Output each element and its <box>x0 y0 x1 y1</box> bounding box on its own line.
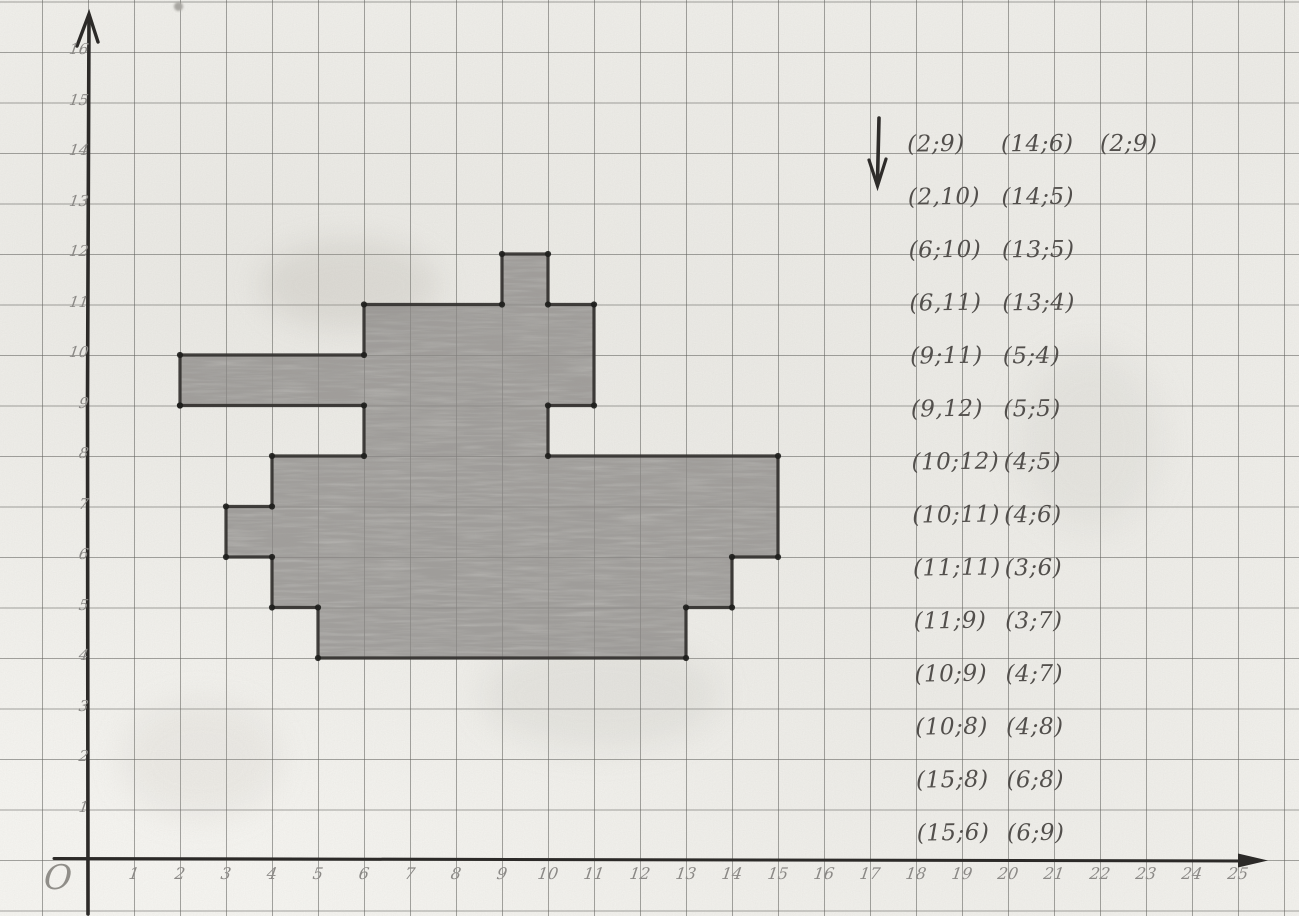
coordinate-pair: (11;11) <box>913 544 1001 598</box>
coordinate-pair: (14;5) <box>1001 174 1074 228</box>
y-tick-label: 8 <box>52 431 94 482</box>
vertex-dot <box>361 453 367 459</box>
x-tick-label: 4 <box>248 864 297 883</box>
vertex-dot <box>269 503 275 509</box>
vertex-dot <box>683 655 689 661</box>
coordinate-list-column-3: (2;9) <box>1100 121 1157 174</box>
coordinate-pair: (2;9) <box>907 120 995 174</box>
pencil-shading-texture <box>140 225 840 695</box>
x-tick-label: 11 <box>570 864 619 883</box>
y-tick-label: 3 <box>52 684 94 735</box>
vertex-dot <box>545 301 551 307</box>
y-tick-label: 9 <box>52 381 94 432</box>
coordinate-pair: (9;11) <box>910 332 998 386</box>
origin-label: O <box>43 858 74 898</box>
scan-speck <box>174 2 183 11</box>
y-tick-label: 15 <box>52 78 94 129</box>
x-tick-label: 18 <box>892 864 941 883</box>
coordinate-pair: (6;9) <box>1007 810 1080 864</box>
tank-figure-fill <box>180 254 778 658</box>
coordinate-pair: (5;4) <box>1003 333 1076 387</box>
coordinate-pair: (2;9) <box>1100 121 1157 174</box>
vertex-dot <box>683 604 689 610</box>
vertex-dot <box>269 554 275 560</box>
coordinate-pair: (4;7) <box>1005 651 1078 705</box>
x-tick-label: 1 <box>110 864 159 883</box>
vertex-dot <box>545 251 551 257</box>
x-tick-label: 3 <box>202 864 251 883</box>
y-tick-label: 12 <box>52 229 94 280</box>
x-tick-label: 15 <box>754 864 803 883</box>
y-tick-label: 14 <box>52 128 94 179</box>
vertex-dot <box>269 604 275 610</box>
scan-smudge <box>480 640 720 750</box>
vertex-dot <box>775 453 781 459</box>
y-tick-label: 16 <box>52 27 94 78</box>
scan-smudge <box>260 240 440 330</box>
vertex-dot <box>729 604 735 610</box>
coordinate-list-column-2: (14;6)(14;5)(13;5)(13;4)(5;4)(5;5)(4;5)(… <box>1001 121 1080 864</box>
vertex-dot <box>545 402 551 408</box>
x-axis-tick-labels: 1234567891011121314151617181920212223242… <box>111 864 1261 883</box>
vertex-dot <box>223 503 229 509</box>
vertex-dot <box>361 352 367 358</box>
x-tick-label: 9 <box>478 864 527 883</box>
x-tick-label: 6 <box>340 864 389 883</box>
x-tick-label: 19 <box>938 864 987 883</box>
vertex-dot <box>361 301 367 307</box>
y-tick-label: 11 <box>52 280 94 331</box>
vertex-dot <box>177 352 183 358</box>
y-tick-label: 6 <box>52 532 94 583</box>
x-tick-label: 16 <box>800 864 849 883</box>
coordinate-pair: (14;6) <box>1001 121 1074 175</box>
coordinate-pair: (3;7) <box>1005 598 1078 652</box>
vertex-dot <box>591 301 597 307</box>
vertex-dot <box>361 402 367 408</box>
x-tick-label: 10 <box>524 864 573 883</box>
coordinate-pair: (6,11) <box>909 279 997 333</box>
tank-figure-outline <box>180 254 778 658</box>
vertex-dot <box>499 301 505 307</box>
x-tick-label: 25 <box>1214 864 1263 883</box>
x-tick-label: 8 <box>432 864 481 883</box>
y-tick-label: 5 <box>52 583 94 634</box>
vertex-dot <box>775 554 781 560</box>
coordinate-pair: (3;6) <box>1004 545 1077 599</box>
vertex-dot <box>315 604 321 610</box>
x-tick-label: 24 <box>1168 864 1217 883</box>
coordinate-pair: (13;4) <box>1002 280 1075 334</box>
coordinate-pair: (5;5) <box>1003 386 1076 440</box>
vertex-dot <box>269 453 275 459</box>
x-tick-label: 21 <box>1030 864 1079 883</box>
graph-paper-scan: 12345678910111213141516 1234567891011121… <box>0 0 1299 916</box>
coordinate-pair: (10;12) <box>911 438 999 492</box>
coordinate-pair: (13;5) <box>1002 227 1075 281</box>
x-tick-label: 7 <box>386 864 435 883</box>
coordinate-pair: (6;8) <box>1006 757 1079 811</box>
y-tick-label: 4 <box>52 633 94 684</box>
x-tick-label: 13 <box>662 864 711 883</box>
coordinate-list-column-1: (2;9)(2,10)(6;10)(6,11)(9;11)(9,12)(10;1… <box>907 120 1005 863</box>
coordinate-pair: (15;8) <box>916 756 1004 810</box>
y-axis-tick-labels: 12345678910111213141516 <box>56 27 91 835</box>
x-tick-label: 5 <box>294 864 343 883</box>
vertex-dot <box>591 402 597 408</box>
vertex-dot <box>545 453 551 459</box>
vertex-dot <box>223 554 229 560</box>
x-tick-label: 12 <box>616 864 665 883</box>
y-tick-label: 2 <box>52 734 94 785</box>
coordinate-pair: (15;6) <box>916 809 1004 863</box>
y-tick-label: 10 <box>52 330 94 381</box>
figure-vertex-dots <box>177 251 781 661</box>
vertex-dot <box>499 251 505 257</box>
coordinate-pair: (10;11) <box>912 491 1000 545</box>
coordinate-pair: (11;9) <box>913 597 1001 651</box>
coordinate-pair: (6;10) <box>908 226 996 280</box>
coordinate-pair: (4;6) <box>1004 492 1077 546</box>
coordinate-pair: (4;8) <box>1006 704 1079 758</box>
coordinate-pair: (2,10) <box>908 173 996 227</box>
coordinate-pair: (10;8) <box>915 703 1003 757</box>
x-tick-label: 14 <box>708 864 757 883</box>
scan-smudge <box>120 700 280 820</box>
vertex-dot <box>177 402 183 408</box>
coordinate-pair: (9,12) <box>911 385 999 439</box>
down-arrow-shaft <box>878 118 880 180</box>
y-tick-label: 13 <box>52 179 94 230</box>
x-tick-label: 22 <box>1076 864 1125 883</box>
y-tick-label: 7 <box>52 482 94 533</box>
x-tick-label: 17 <box>846 864 895 883</box>
vertex-dot <box>177 402 183 408</box>
x-tick-label: 23 <box>1122 864 1171 883</box>
vertex-dot <box>729 554 735 560</box>
y-tick-label: 1 <box>52 785 94 836</box>
coordinate-pair: (4;5) <box>1004 439 1077 493</box>
down-arrow-icon <box>869 159 886 186</box>
x-tick-label: 20 <box>984 864 1033 883</box>
vertex-dot <box>315 655 321 661</box>
coordinate-pair: (10;9) <box>914 650 1002 704</box>
list-pointer <box>869 118 886 186</box>
x-tick-label: 2 <box>156 864 205 883</box>
